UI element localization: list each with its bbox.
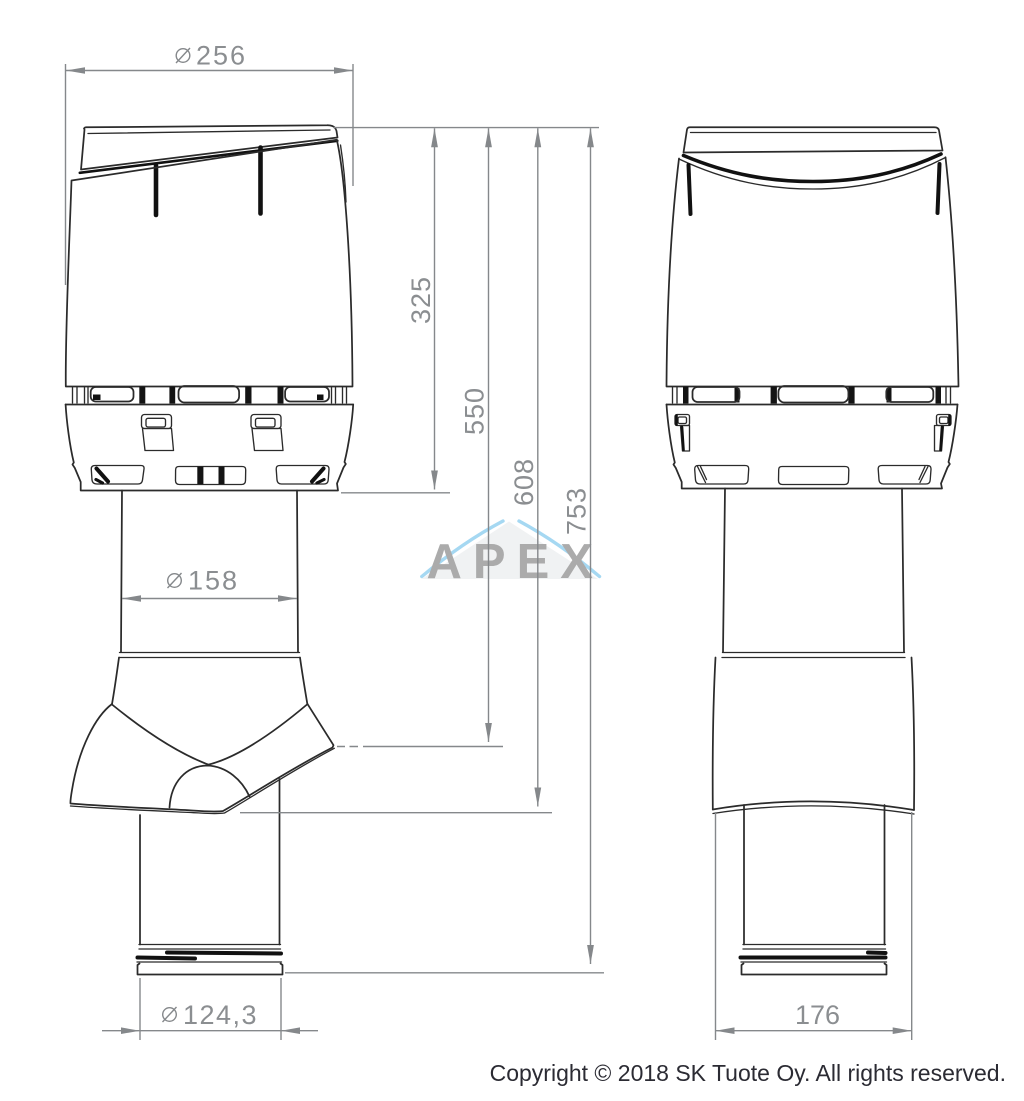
svg-text:608: 608 bbox=[509, 458, 539, 506]
svg-text:124,3: 124,3 bbox=[183, 1000, 258, 1030]
svg-text:Copyright © 2018 SK Tuote Oy.: Copyright © 2018 SK Tuote Oy. All rights… bbox=[490, 1060, 1006, 1086]
svg-text:176: 176 bbox=[795, 1000, 840, 1030]
svg-text:753: 753 bbox=[562, 487, 592, 535]
svg-text:550: 550 bbox=[460, 387, 490, 435]
svg-text:325: 325 bbox=[406, 276, 436, 324]
svg-text:256: 256 bbox=[196, 41, 247, 71]
svg-text:APEX: APEX bbox=[427, 535, 604, 589]
svg-text:158: 158 bbox=[188, 566, 239, 596]
